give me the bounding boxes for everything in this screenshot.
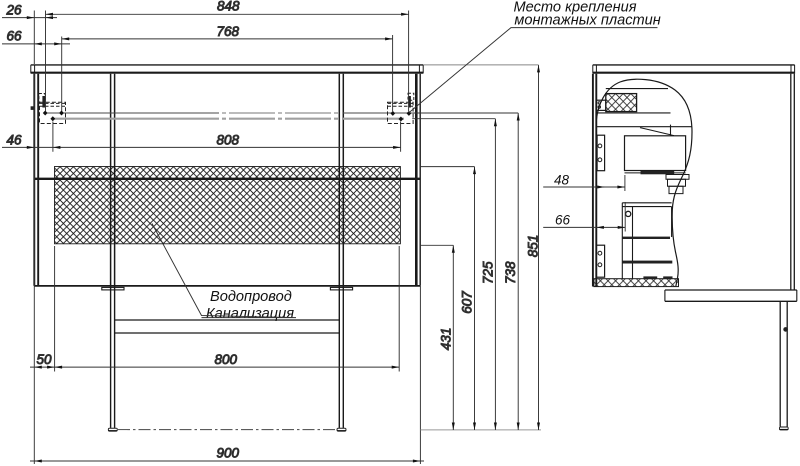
- svg-text:431: 431: [438, 328, 453, 351]
- svg-text:50: 50: [37, 352, 53, 367]
- svg-text:48: 48: [554, 173, 570, 188]
- svg-text:26: 26: [6, 3, 23, 18]
- svg-text:Канализация: Канализация: [206, 306, 294, 322]
- svg-text:Водопровод: Водопровод: [210, 289, 292, 305]
- svg-text:808: 808: [217, 132, 240, 147]
- svg-text:851: 851: [526, 235, 541, 258]
- svg-text:900: 900: [217, 446, 240, 461]
- svg-text:монтажных пластин: монтажных пластин: [514, 12, 660, 28]
- svg-text:800: 800: [215, 352, 238, 367]
- svg-text:768: 768: [217, 24, 240, 39]
- svg-text:725: 725: [480, 261, 495, 284]
- svg-text:66: 66: [555, 213, 571, 228]
- svg-text:607: 607: [460, 291, 475, 314]
- svg-text:848: 848: [217, 0, 240, 14]
- svg-text:46: 46: [7, 132, 23, 147]
- svg-text:738: 738: [503, 261, 518, 284]
- svg-text:66: 66: [7, 29, 23, 44]
